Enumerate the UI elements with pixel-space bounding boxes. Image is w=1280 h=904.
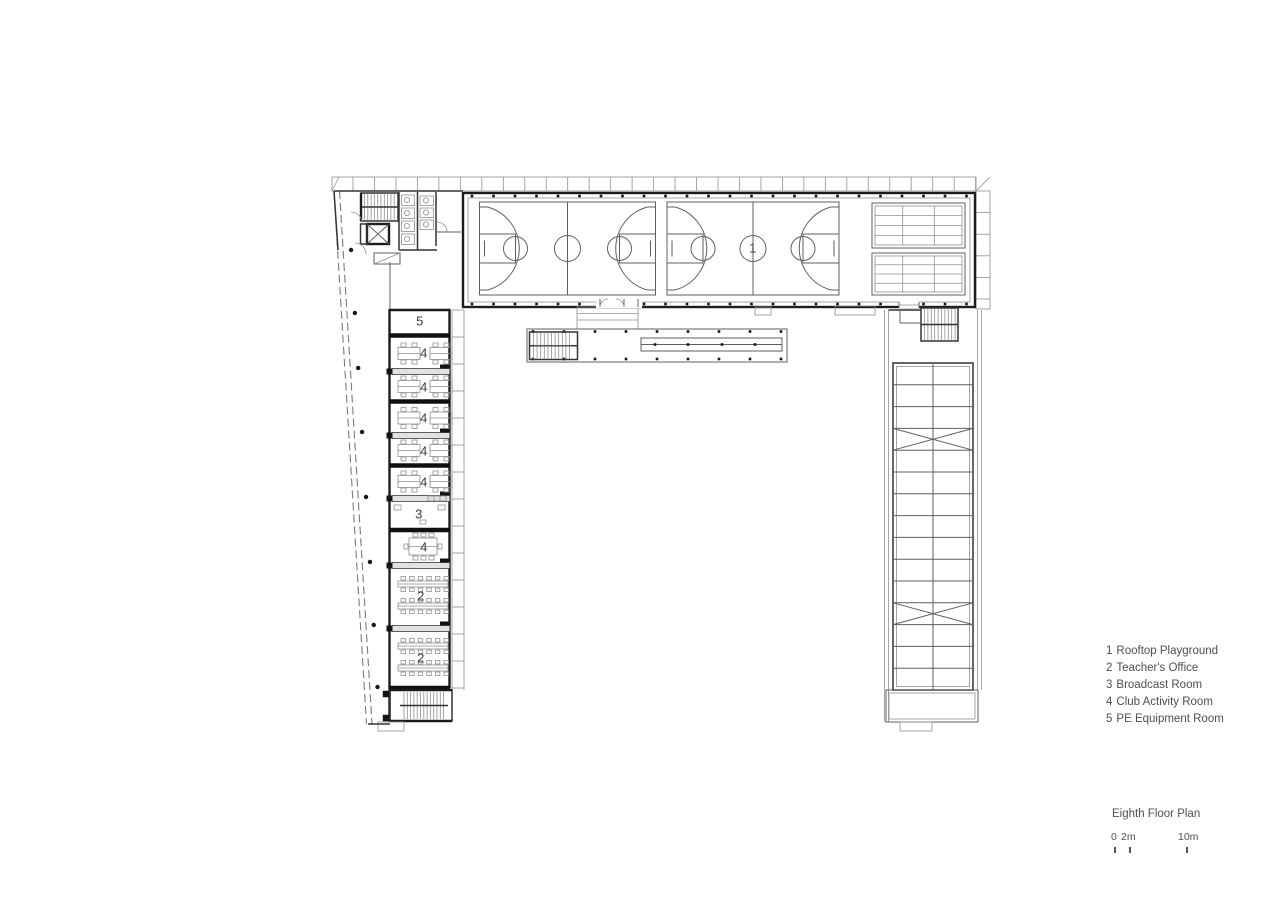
- scale-tick-2m: [1129, 847, 1131, 853]
- walkway-stair: [530, 332, 578, 360]
- sports-court: [872, 203, 965, 248]
- room-label-club-activity-6: 4: [420, 540, 428, 555]
- legend-item-5: 5PE Equipment Room: [1106, 711, 1224, 728]
- legend-text: Club Activity Room: [1116, 696, 1213, 708]
- roof-grid: [893, 363, 973, 690]
- stair-bottom-left: [368, 690, 452, 731]
- legend-num: 4: [1106, 694, 1112, 711]
- rooftop-playground: [463, 193, 975, 307]
- roof-parapet-band: [332, 177, 990, 309]
- room-label-club-activity-5: 4: [420, 475, 428, 490]
- room-label-club-activity-2: 4: [420, 380, 428, 395]
- east-facade-band: [452, 310, 464, 690]
- room-label-teachers-office-2: 2: [417, 651, 425, 666]
- legend-item-3: 3Broadcast Room: [1106, 677, 1224, 694]
- legend-text: PE Equipment Room: [1116, 713, 1223, 725]
- scale-label-10m: 10m: [1178, 831, 1198, 843]
- scale-label-2m: 2m: [1121, 831, 1136, 843]
- room-label-club-activity-1: 4: [420, 346, 428, 361]
- service-core: [351, 192, 461, 309]
- legend-num: 5: [1106, 711, 1112, 728]
- room-label-club-activity-3: 4: [420, 411, 428, 426]
- left-wing: [334, 191, 464, 731]
- legend-text: Teacher's Office: [1116, 662, 1198, 674]
- stair-top-right: [889, 308, 959, 341]
- room-label-club-activity-4: 4: [420, 444, 428, 459]
- playground-access: [577, 299, 919, 329]
- walkway-bench: [641, 338, 782, 351]
- legend-item-2: 2Teacher's Office: [1106, 660, 1224, 677]
- legend-num: 3: [1106, 677, 1112, 694]
- plan-title: Eighth Floor Plan: [1112, 808, 1200, 820]
- legend-item-4: 4Club Activity Room: [1106, 694, 1224, 711]
- room-label-broadcast-room: 3: [415, 507, 423, 522]
- sports-court: [872, 253, 965, 295]
- legend-text: Rooftop Playground: [1116, 645, 1218, 657]
- room-label-teachers-office-1: 2: [417, 589, 425, 604]
- legend-num: 1: [1106, 643, 1112, 660]
- scale-tick-10m: [1186, 847, 1188, 853]
- basketball-court-a: [480, 202, 656, 295]
- legend-text: Broadcast Room: [1116, 679, 1202, 691]
- scale-label-0: 0: [1111, 831, 1117, 843]
- floor-plan-drawing: [0, 0, 1280, 904]
- right-wing: [885, 310, 982, 731]
- floor-plan-page: 1 5 4 4 4 4 4 3 4 2 2 1Rooftop Playgroun…: [0, 0, 1280, 904]
- legend: 1Rooftop Playground 2Teacher's Office 3B…: [1106, 643, 1224, 728]
- legend-item-1: 1Rooftop Playground: [1106, 643, 1224, 660]
- legend-num: 2: [1106, 660, 1112, 677]
- connecting-walkway: [527, 329, 787, 362]
- scale-tick-0: [1114, 847, 1116, 853]
- room-label-pe-equipment-room: 5: [416, 314, 424, 329]
- room-label-rooftop-playground: 1: [749, 241, 757, 256]
